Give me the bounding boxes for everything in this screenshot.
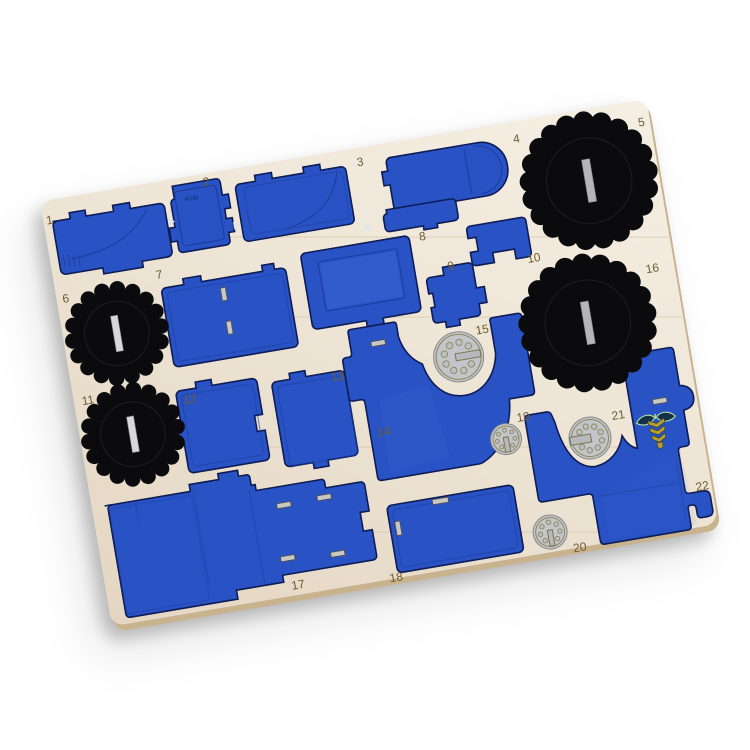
svg-text:14: 14 xyxy=(376,423,392,439)
svg-text:12: 12 xyxy=(182,391,198,407)
svg-text:10: 10 xyxy=(526,250,542,266)
svg-text:13: 13 xyxy=(330,368,346,384)
svg-text:20: 20 xyxy=(572,539,588,555)
svg-text:22: 22 xyxy=(695,478,711,494)
svg-text:21: 21 xyxy=(611,407,627,423)
svg-text:17: 17 xyxy=(290,577,306,593)
svg-text:18: 18 xyxy=(388,569,404,585)
svg-text:15: 15 xyxy=(474,321,490,337)
svg-text:11: 11 xyxy=(81,392,96,408)
svg-text:16: 16 xyxy=(645,260,661,276)
svg-text:19: 19 xyxy=(515,409,531,425)
